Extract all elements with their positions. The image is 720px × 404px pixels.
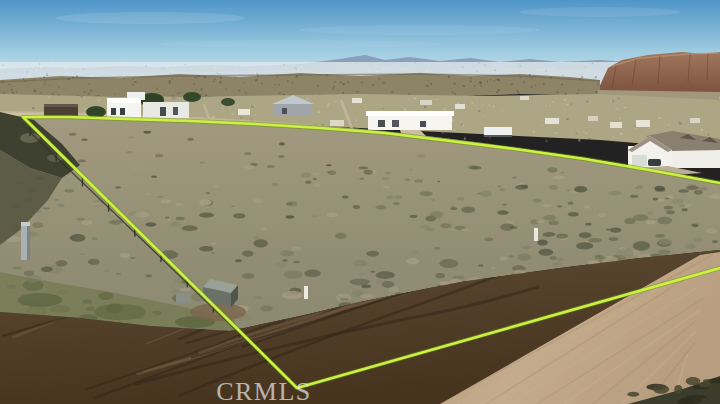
photo-canvas: CRMLS [0, 0, 720, 404]
crmls-watermark: CRMLS [216, 377, 312, 404]
semi-trailer [484, 127, 512, 137]
utility-pedestal [21, 222, 30, 260]
aerial-listing-photo: CRMLS [0, 0, 720, 404]
debris-panel [176, 293, 190, 303]
